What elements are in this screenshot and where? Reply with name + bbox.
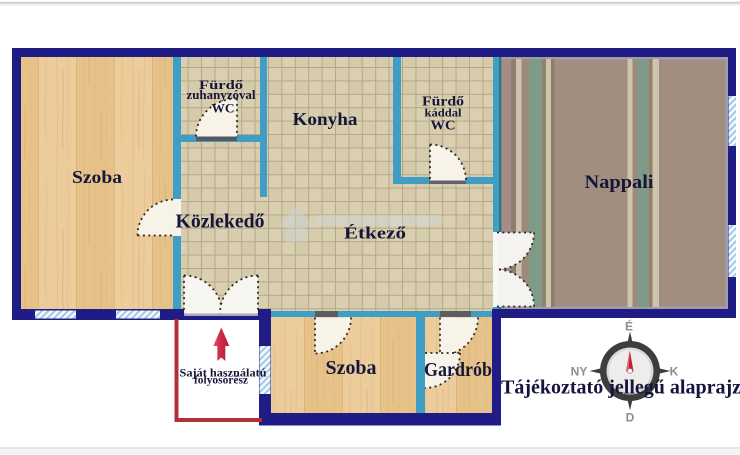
- svg-text:Szoba: Szoba: [326, 357, 377, 379]
- svg-text:Gardrób: Gardrób: [424, 360, 492, 381]
- svg-text:WC: WC: [212, 101, 235, 116]
- svg-text:Tájékoztató jellegű alaprajz: Tájékoztató jellegű alaprajz: [501, 377, 740, 399]
- svg-text:Nappali: Nappali: [585, 173, 654, 193]
- svg-text:Étkező: Étkező: [344, 224, 406, 243]
- svg-text:Szoba: Szoba: [72, 167, 122, 187]
- svg-text:D: D: [626, 411, 635, 425]
- svg-text:Közlekedő: Közlekedő: [176, 211, 265, 233]
- svg-text:Konyha: Konyha: [293, 109, 358, 129]
- svg-text:folyosórész: folyosórész: [194, 373, 249, 387]
- svg-text:É: É: [625, 319, 633, 334]
- svg-text:WC: WC: [431, 118, 456, 133]
